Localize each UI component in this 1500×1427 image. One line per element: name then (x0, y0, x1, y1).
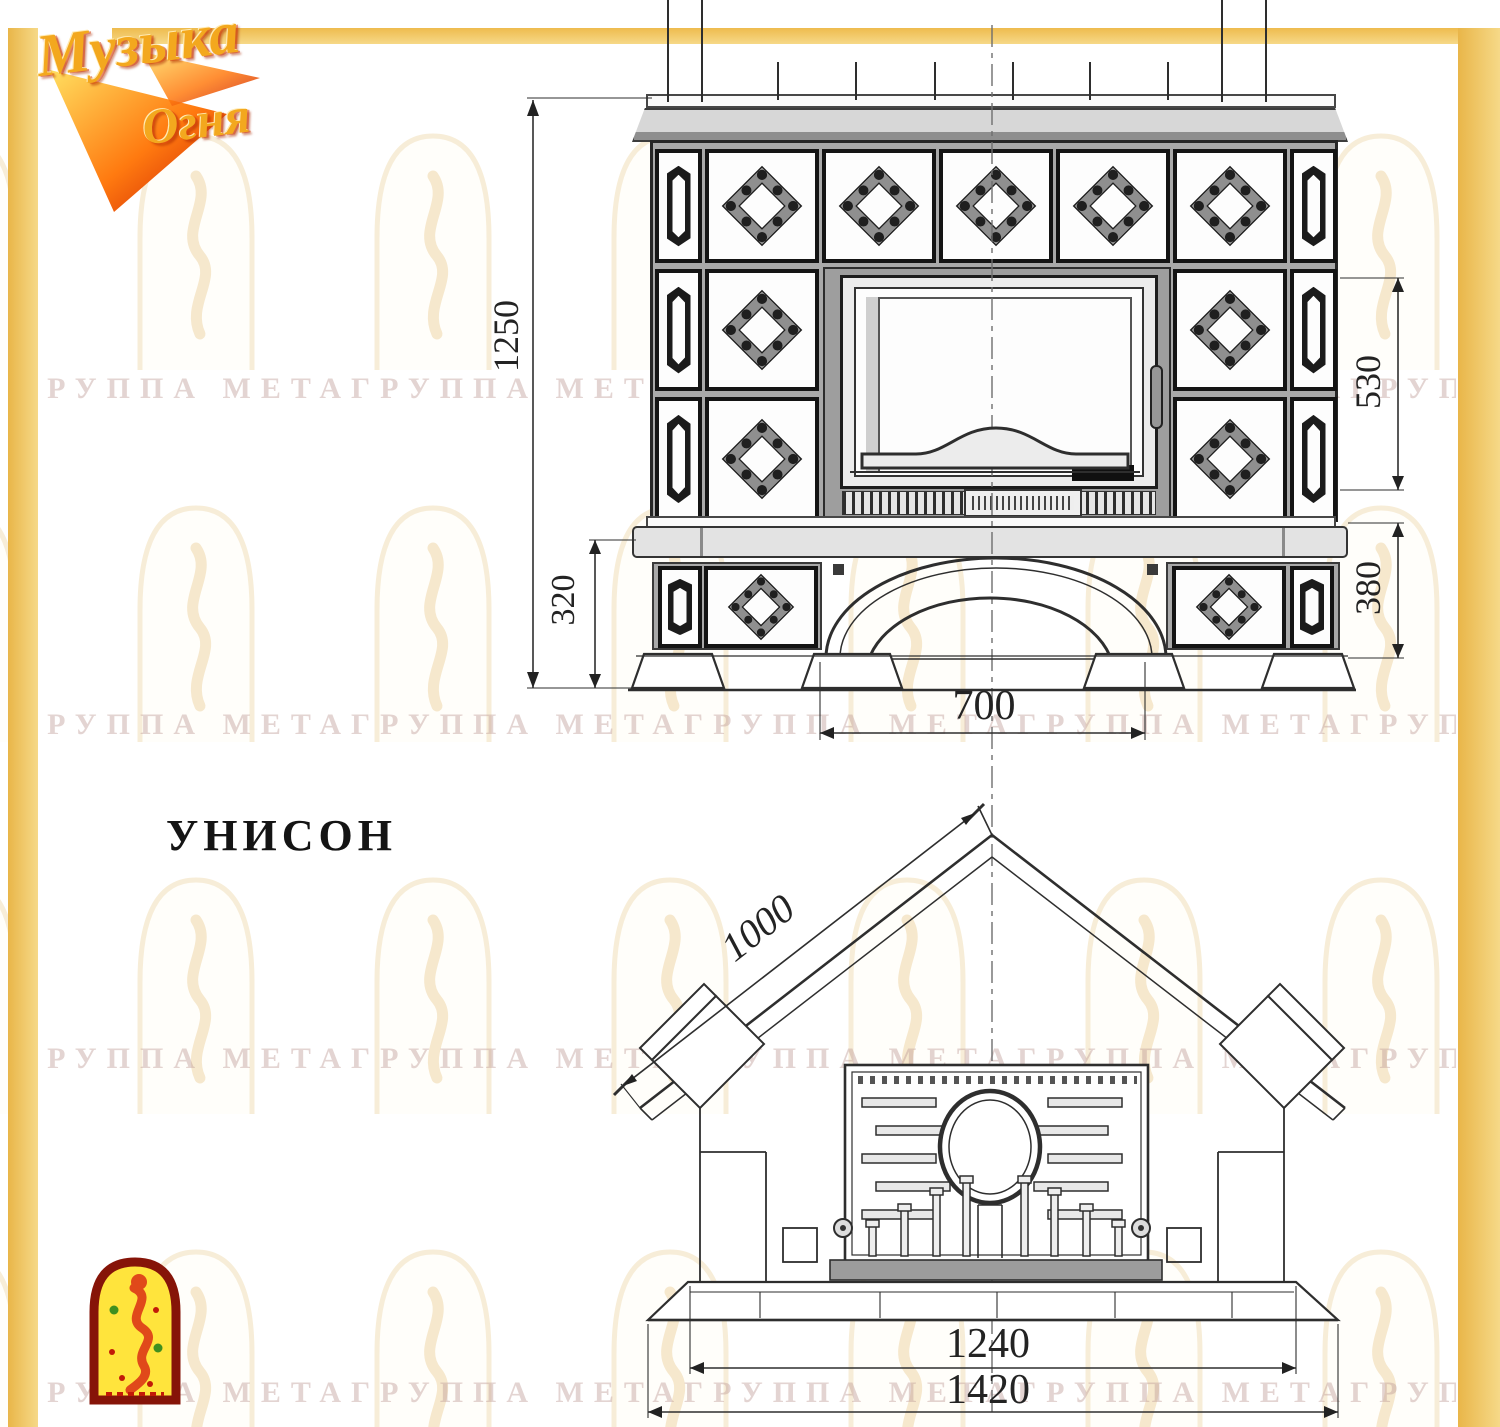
flute-tile (1290, 397, 1337, 521)
frame-left-bar (8, 28, 38, 1427)
cornice (632, 108, 1348, 142)
diamond-tile (705, 269, 819, 391)
dim-base-left-height: 320 (544, 540, 584, 660)
flute-tile (655, 397, 702, 521)
front-base-row (652, 560, 1340, 654)
front-tile-body (650, 140, 1338, 522)
diamond-tile (1173, 269, 1287, 391)
flute-tile (1290, 149, 1337, 263)
door-handle (1072, 465, 1134, 481)
diamond-tile (1172, 566, 1286, 648)
diamond-tile (1173, 149, 1287, 263)
mantel-shelf (632, 526, 1348, 558)
diamond-tile (705, 397, 819, 521)
dim-overall-width: 1420 (908, 1368, 1068, 1412)
diamond-tile (1173, 397, 1287, 521)
flute-tile (1290, 566, 1334, 648)
stove-door-glass (866, 297, 1132, 473)
diamond-tile (939, 149, 1053, 263)
flute-tile (655, 149, 702, 263)
diamond-tile (705, 149, 819, 263)
cornice-top-slab (646, 94, 1336, 108)
diamond-tile (1056, 149, 1170, 263)
brand-logo: Музыка Огня (14, 0, 344, 230)
door-hinge-handle (1150, 365, 1163, 429)
flute-tile (1290, 269, 1337, 391)
dim-base-right-height: 380 (1348, 528, 1388, 648)
model-title: УНИСОН (166, 810, 397, 861)
watermark-text-row: ГРУППА МЕТАГРУППА МЕТАГРУППА МЕТАГРУППА … (18, 1376, 1456, 1414)
vent-grille-center (964, 489, 1082, 517)
frame-right-bar (1458, 28, 1500, 1427)
dim-inner-width: 1240 (908, 1322, 1068, 1366)
dim-total-height: 1250 (486, 276, 526, 396)
scanned-fireplace-sheet: ГРУППА МЕТАГРУППА МЕТАГРУППА МЕТАГРУППА … (0, 0, 1500, 1427)
watermark-text-row: ГРУППА МЕТАГРУППА МЕТАГРУППА МЕТАГРУППА … (18, 708, 1456, 746)
flame-dancer-emblem (84, 1250, 186, 1406)
dim-firebox-height: 530 (1348, 322, 1388, 442)
dim-arch-width: 700 (924, 684, 1044, 728)
firebox (823, 267, 1171, 523)
diamond-tile (822, 149, 936, 263)
flute-tile (655, 269, 702, 391)
watermark-text-row: ГРУППА МЕТАГРУППА МЕТАГРУППА МЕТАГРУППА … (18, 1042, 1456, 1080)
door-mullion (866, 297, 880, 473)
diamond-tile (704, 566, 818, 648)
flute-tile (658, 566, 702, 648)
